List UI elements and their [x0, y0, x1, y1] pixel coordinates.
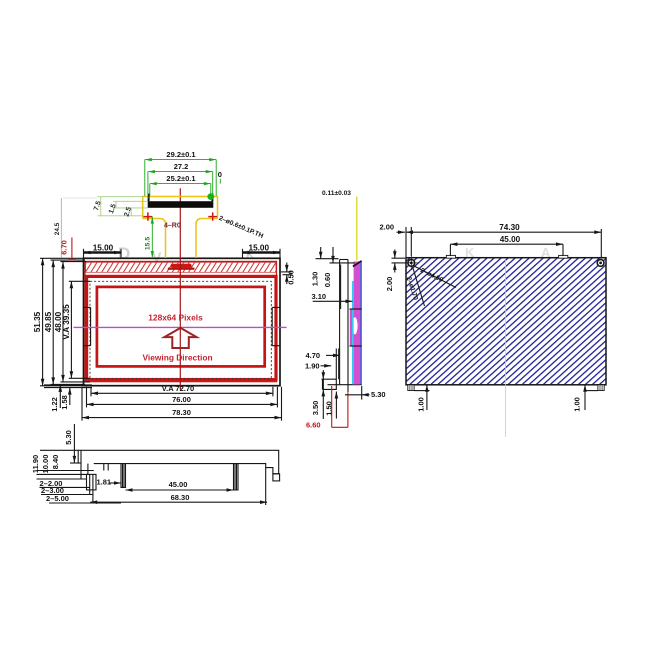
svg-text:76.00: 76.00 — [172, 395, 191, 404]
svg-text:Viewing Direction: Viewing Direction — [142, 352, 212, 362]
svg-text:4.70: 4.70 — [306, 351, 321, 360]
svg-text:45.00: 45.00 — [169, 480, 188, 489]
svg-text:0: 0 — [218, 170, 222, 179]
svg-text:1.00: 1.00 — [416, 397, 425, 412]
svg-text:1.22: 1.22 — [50, 397, 59, 412]
svg-text:25.2±0.1: 25.2±0.1 — [166, 174, 195, 183]
svg-text:2–5.00: 2–5.00 — [46, 494, 69, 503]
svg-text:24.5: 24.5 — [54, 222, 61, 235]
svg-text:6.60: 6.60 — [306, 421, 321, 430]
svg-text:1.30: 1.30 — [310, 272, 319, 287]
svg-text:2.00: 2.00 — [380, 223, 395, 232]
svg-text:5.30: 5.30 — [371, 390, 386, 399]
svg-text:0.11±0.03: 0.11±0.03 — [322, 190, 351, 197]
svg-text:1.58: 1.58 — [60, 395, 69, 410]
svg-text:3.50: 3.50 — [311, 401, 320, 416]
svg-text:1.00: 1.00 — [573, 397, 582, 412]
svg-text:15.00: 15.00 — [249, 243, 270, 252]
svg-text:3.10: 3.10 — [312, 292, 327, 301]
svg-text:15.5: 15.5 — [144, 237, 151, 250]
svg-text:74.30: 74.30 — [499, 223, 520, 232]
svg-text:128x64 Pixels: 128x64 Pixels — [148, 313, 203, 323]
svg-text:27.2: 27.2 — [174, 162, 189, 171]
svg-text:51.35: 51.35 — [33, 311, 42, 332]
svg-text:8.40: 8.40 — [51, 455, 60, 470]
svg-text:15.00: 15.00 — [93, 243, 114, 252]
svg-text:10.00: 10.00 — [41, 455, 50, 474]
svg-text:1.81: 1.81 — [97, 478, 112, 487]
svg-text:78.30: 78.30 — [172, 408, 191, 417]
svg-text:1.90: 1.90 — [305, 362, 320, 371]
svg-text:2.00: 2.00 — [385, 277, 394, 292]
svg-text:0.50: 0.50 — [287, 270, 296, 285]
svg-text:0.60: 0.60 — [323, 273, 332, 288]
svg-text:V.A 72.70: V.A 72.70 — [162, 384, 194, 393]
svg-text:68.30: 68.30 — [171, 493, 190, 502]
svg-text:4–R0: 4–R0 — [164, 223, 181, 230]
svg-text:5.30: 5.30 — [64, 430, 73, 445]
svg-text:29.2±0.1: 29.2±0.1 — [166, 150, 195, 159]
svg-text:49.85: 49.85 — [44, 311, 53, 332]
svg-text:11.90: 11.90 — [31, 455, 40, 473]
svg-text:45.00: 45.00 — [500, 235, 521, 244]
svg-text:6.70: 6.70 — [59, 240, 68, 255]
svg-text:V.A 39.35: V.A 39.35 — [62, 304, 71, 340]
